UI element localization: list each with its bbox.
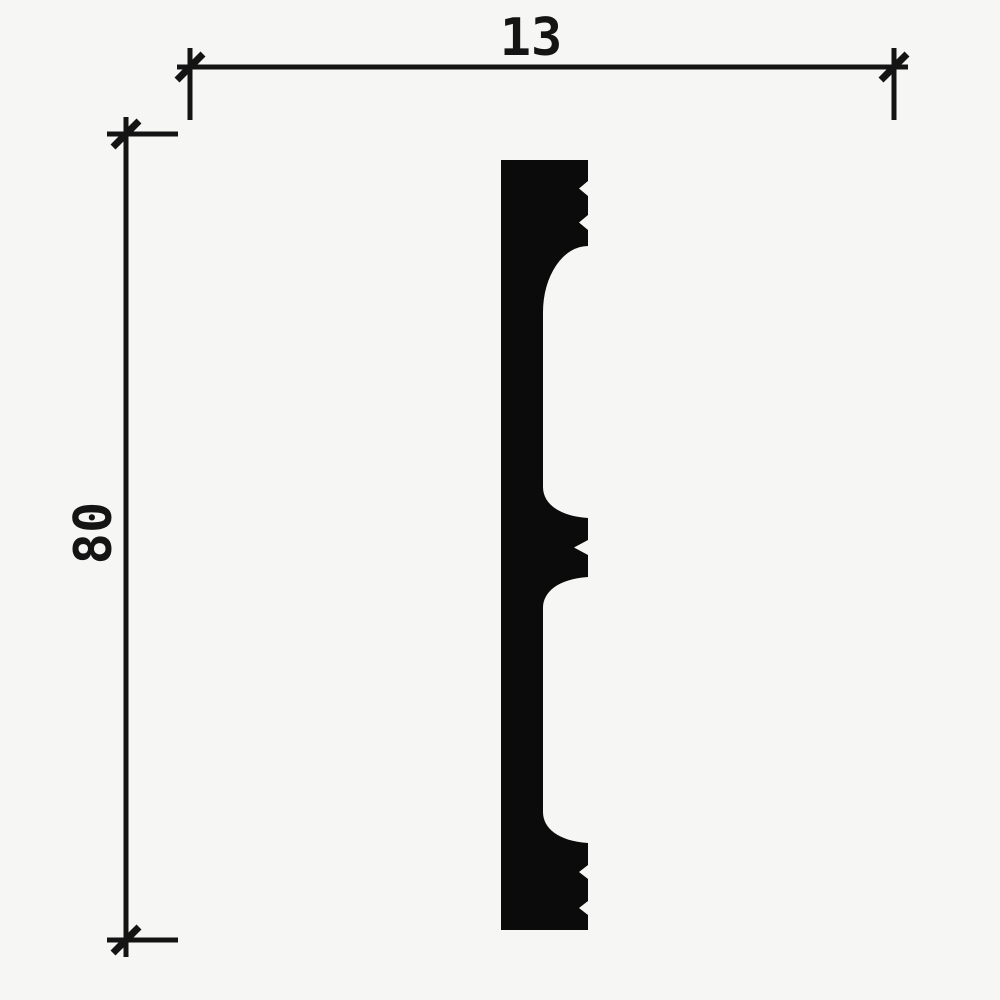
molding-profile-shape	[501, 160, 588, 930]
width-dimension-label: 13	[500, 8, 563, 68]
molding-profile-drawing: 13 80	[0, 0, 1000, 1000]
height-dimension-label: 80	[64, 502, 124, 565]
technical-drawing-canvas: 13 80	[0, 0, 1000, 1000]
width-dimension: 13	[177, 8, 908, 120]
height-dimension: 80	[64, 117, 178, 957]
